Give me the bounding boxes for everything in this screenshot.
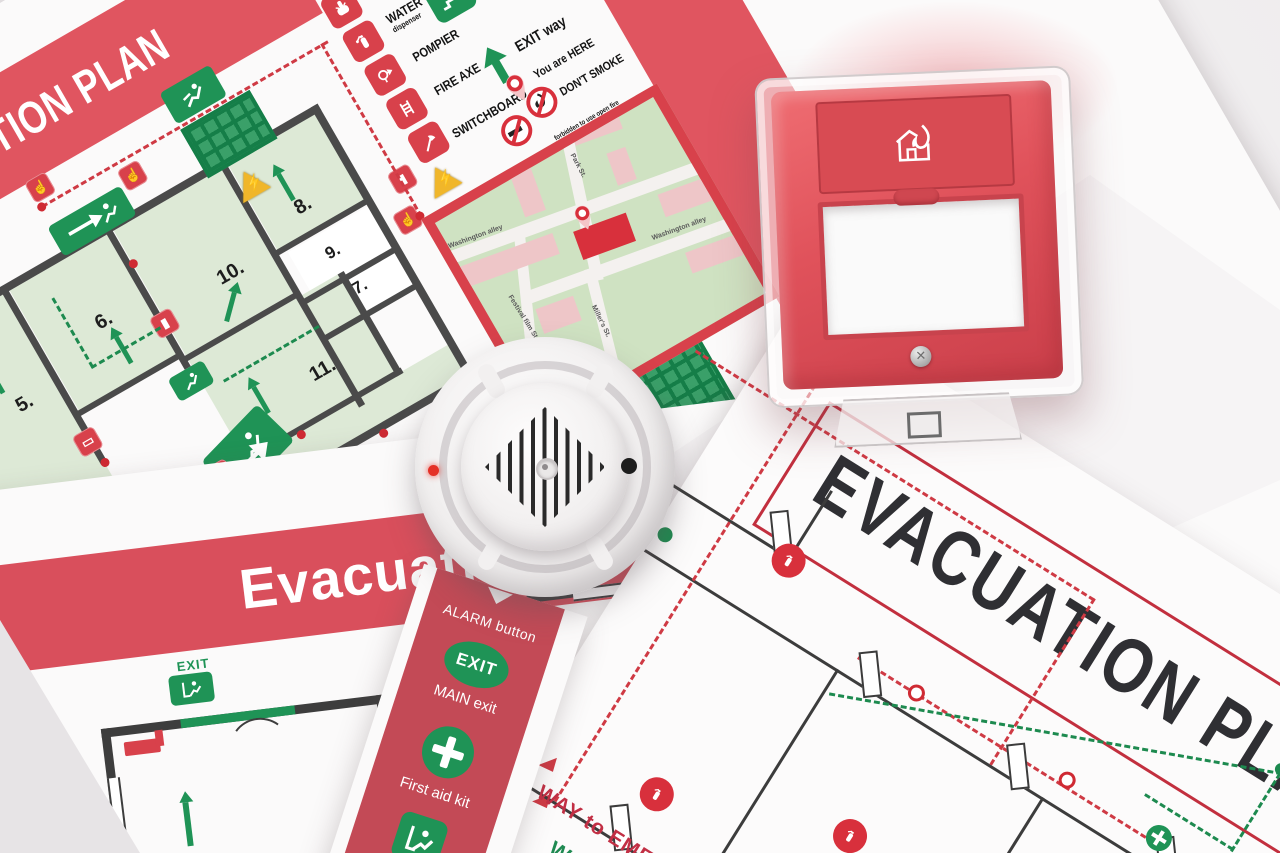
top-panel [815,94,1015,194]
flap-slot [907,411,942,438]
exit-oval-label: EXIT [453,649,499,681]
extinguisher-badge-icon [633,771,680,818]
photo-scene: EVACUATION PLAN [0,0,1280,853]
switchboard-warning-icon: ⚡ [421,159,462,198]
door-symbol [859,650,883,698]
burning-house-icon [888,119,942,169]
door-symbol [1006,743,1030,791]
map-building [504,152,546,218]
wall [882,797,1045,853]
alarm-glass-window [818,193,1030,340]
map-building [570,112,623,146]
window-tab [893,188,940,206]
screw: ✕ [910,346,932,368]
red-furniture-icon [154,730,164,747]
legend-label-pompier: POMPIER [410,27,461,64]
detector-red-led [428,465,439,476]
detector-test-button [621,458,637,474]
legend-label-exit-way: EXIT way [513,14,569,55]
map-building [606,147,636,186]
detector-hub-hole [542,464,548,470]
smoke-detector [415,337,675,597]
extinguisher-badge-icon [827,813,874,853]
legend-label-water: WATER dispenser [384,0,429,34]
wall [698,669,839,853]
alarm-box-body: ✕ [771,80,1064,390]
fire-axe-icon [405,119,451,165]
door-marker [1055,768,1078,791]
door-arc [225,713,296,784]
fire-alarm-call-point: ✕ [754,65,1082,446]
exit-sign-icon [168,671,215,706]
alarm-hand-icon: ☝ [116,159,149,192]
route-arrow-icon [182,802,193,846]
map-building [535,296,581,334]
legend-label-fire-axe: FIRE AXE [432,61,482,98]
